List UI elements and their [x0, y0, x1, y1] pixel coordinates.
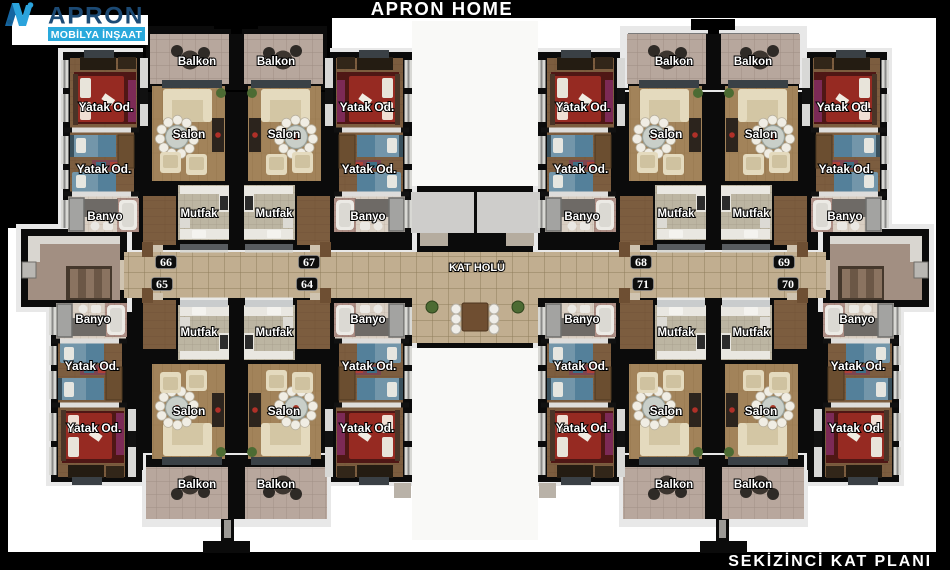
svg-text:Yatak Od.: Yatak Od.: [67, 421, 122, 435]
svg-text:Mutfak: Mutfak: [180, 208, 218, 220]
svg-text:Yatak Od.: Yatak Od.: [829, 421, 884, 435]
svg-text:Mutfak: Mutfak: [657, 208, 695, 220]
svg-text:Mutfak: Mutfak: [180, 327, 218, 339]
svg-text:65: 65: [156, 277, 168, 291]
svg-text:Balkon: Balkon: [257, 479, 295, 491]
svg-text:APRON HOME: APRON HOME: [371, 0, 513, 19]
svg-text:68: 68: [635, 255, 647, 269]
svg-text:Banyo: Banyo: [839, 314, 874, 326]
svg-text:Balkon: Balkon: [734, 479, 772, 491]
svg-text:Banyo: Banyo: [75, 314, 110, 326]
svg-text:Yatak Od.: Yatak Od.: [340, 100, 395, 114]
svg-text:Salon: Salon: [173, 404, 206, 418]
svg-text:Yatak Od.: Yatak Od.: [554, 162, 609, 176]
svg-text:Yatak Od.: Yatak Od.: [342, 162, 397, 176]
svg-text:Banyo: Banyo: [350, 314, 385, 326]
svg-text:Balkon: Balkon: [655, 479, 693, 491]
svg-text:Mutfak: Mutfak: [732, 327, 770, 339]
svg-text:Banyo: Banyo: [564, 314, 599, 326]
svg-text:Salon: Salon: [650, 404, 683, 418]
svg-text:Yatak Od.: Yatak Od.: [340, 421, 395, 435]
svg-text:Yatak Od.: Yatak Od.: [342, 359, 397, 373]
svg-text:Yatak Od.: Yatak Od.: [817, 100, 872, 114]
svg-text:Banyo: Banyo: [87, 211, 122, 223]
svg-text:Banyo: Banyo: [350, 211, 385, 223]
svg-text:Yatak Od.: Yatak Od.: [65, 359, 120, 373]
svg-text:Mutfak: Mutfak: [255, 327, 293, 339]
svg-text:Balkon: Balkon: [178, 56, 216, 68]
svg-text:Yatak Od.: Yatak Od.: [554, 359, 609, 373]
svg-text:Mutfak: Mutfak: [657, 327, 695, 339]
svg-text:MOBİLYA İNŞAAT: MOBİLYA İNŞAAT: [51, 28, 143, 41]
svg-text:Mutfak: Mutfak: [255, 208, 293, 220]
svg-text:SEKİZİNCİ KAT PLANI: SEKİZİNCİ KAT PLANI: [728, 552, 932, 570]
svg-text:Salon: Salon: [650, 127, 683, 141]
svg-text:Balkon: Balkon: [178, 479, 216, 491]
svg-text:Salon: Salon: [268, 127, 301, 141]
svg-text:64: 64: [301, 277, 313, 291]
svg-text:Yatak Od.: Yatak Od.: [556, 421, 611, 435]
svg-text:71: 71: [637, 277, 649, 291]
svg-text:Salon: Salon: [173, 127, 206, 141]
svg-text:Yatak Od.: Yatak Od.: [819, 162, 874, 176]
svg-text:Salon: Salon: [745, 127, 778, 141]
svg-text:Mutfak: Mutfak: [732, 208, 770, 220]
svg-text:APRON: APRON: [48, 3, 144, 30]
svg-text:Yatak Od.: Yatak Od.: [77, 162, 132, 176]
svg-text:KAT HOLÜ: KAT HOLÜ: [449, 261, 505, 274]
svg-text:Yatak Od.: Yatak Od.: [556, 100, 611, 114]
svg-text:Salon: Salon: [268, 404, 301, 418]
svg-text:70: 70: [782, 277, 794, 291]
svg-text:Banyo: Banyo: [827, 211, 862, 223]
svg-text:67: 67: [303, 255, 315, 269]
svg-text:66: 66: [160, 255, 172, 269]
svg-text:Balkon: Balkon: [734, 56, 772, 68]
svg-text:Yatak Od.: Yatak Od.: [79, 100, 134, 114]
svg-text:Yatak Od.: Yatak Od.: [831, 359, 886, 373]
svg-text:Balkon: Balkon: [655, 56, 693, 68]
svg-text:69: 69: [778, 255, 790, 269]
svg-text:Balkon: Balkon: [257, 56, 295, 68]
svg-text:Banyo: Banyo: [564, 211, 599, 223]
svg-text:Salon: Salon: [745, 404, 778, 418]
